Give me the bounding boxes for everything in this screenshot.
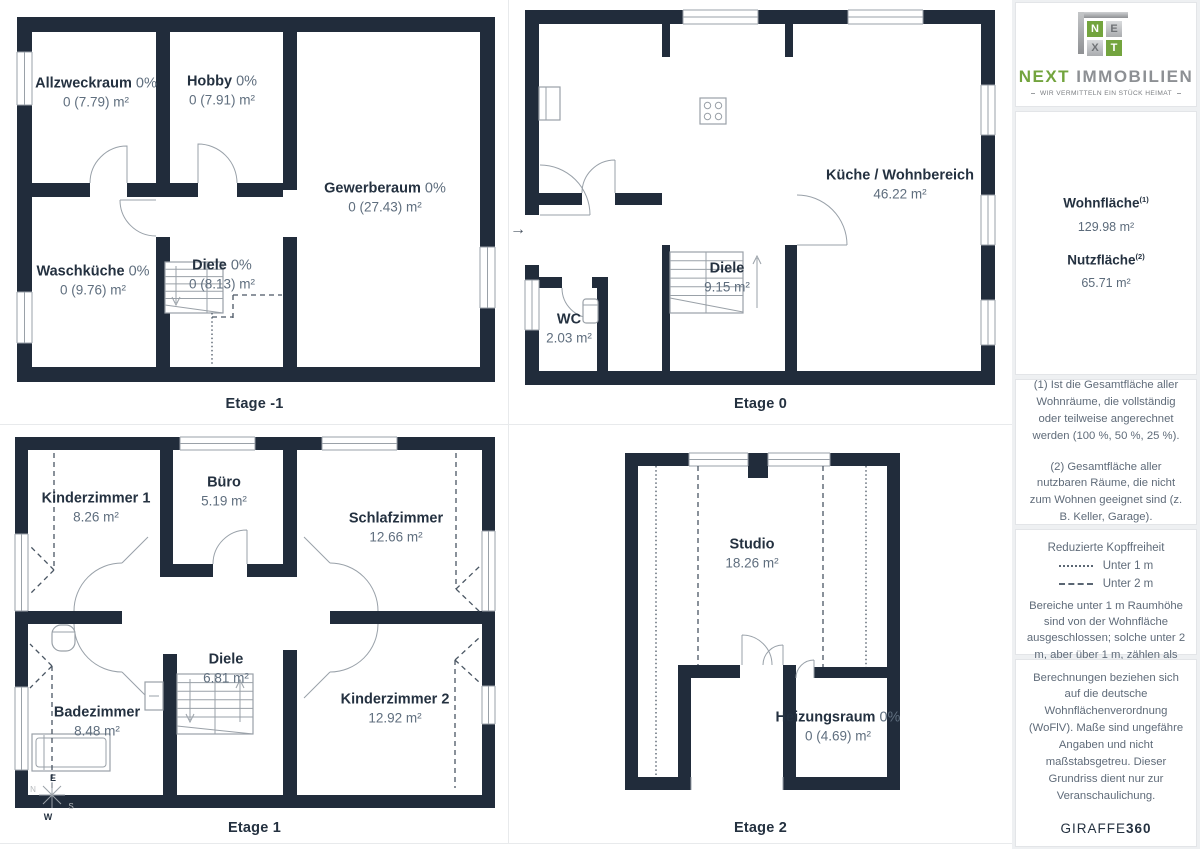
tagline-line-left <box>1031 93 1035 94</box>
quadrant-etage-1: E N S W Kinderzimmer 1 8.26 m² Büro 5.19… <box>0 424 509 849</box>
headroom-legend-card: Reduzierte Kopffreiheit Unter 1 m Unter … <box>1015 529 1197 655</box>
room-label-diele-minus1: Diele 0% 0 (8.13) m² <box>189 255 255 294</box>
room-label-hobby: Hobby 0% 0 (7.91) m² <box>187 71 257 110</box>
room-label-gewerberaum: Gewerberaum 0% 0 (27.43) m² <box>324 178 446 217</box>
logo-letter-n: N <box>1087 21 1103 37</box>
brand-name: NEXT IMMOBILIEN <box>1019 67 1194 87</box>
compass-east: E <box>50 773 56 783</box>
nutzflaeche-block: Nutzfläche(2) 65.71 m² <box>1067 252 1144 291</box>
room-label-waschkueche: Waschküche 0% 0 (9.76) m² <box>36 261 149 300</box>
logo-letter-e: E <box>1106 21 1122 37</box>
logo-letter-t: T <box>1106 40 1122 56</box>
wohnflaeche-block: Wohnfläche(1) 129.98 m² <box>1063 195 1148 234</box>
quadrant-etage-0: → Küche / Wohnbereich 46.22 m² Diele 9.1… <box>509 0 1012 424</box>
dotted-line-sample <box>1059 565 1093 567</box>
room-label-diele-0: Diele 9.15 m² <box>704 258 750 297</box>
wohnflaeche-value: 129.98 m² <box>1063 220 1148 234</box>
compass-south: S <box>68 802 73 811</box>
etage-0-plan-drawing <box>509 0 1012 424</box>
compass-north: N <box>30 785 36 794</box>
room-label-allzweckraum: Allzweckraum 0% 0 (7.79) m² <box>35 73 157 112</box>
dashed-line-sample <box>1059 583 1093 585</box>
room-label-wc: WC 2.03 m² <box>546 309 592 348</box>
giraffe360-logo: GIRAFFE360 <box>1060 821 1151 836</box>
legend-item-under-1m: Unter 1 m <box>1026 560 1186 572</box>
room-label-heizungsraum: Heizungsraum 0% 0 (4.69) m² <box>776 707 901 746</box>
vertical-divider <box>508 0 509 843</box>
floorplan-sheet: Allzweckraum 0% 0 (7.79) m² Hobby 0% 0 (… <box>0 0 1200 849</box>
floorplans-area: Allzweckraum 0% 0 (7.79) m² Hobby 0% 0 (… <box>0 0 1012 849</box>
room-label-schlafzimmer: Schlafzimmer 12.66 m² <box>349 508 443 547</box>
legend-title: Reduzierte Kopffreiheit <box>1026 542 1186 554</box>
brand-tagline: WIR VERMITTELN EIN STÜCK HEIMAT <box>1031 90 1181 97</box>
footnotes-card: (1) Ist die Gesamtfläche aller Wohnräume… <box>1015 379 1197 525</box>
legend-item-under-2m: Unter 2 m <box>1026 578 1186 590</box>
footnote-2: (2) Gesamtfläche aller nutzbaren Räume, … <box>1029 459 1183 527</box>
floor-label-etage-minus1: Etage -1 <box>0 396 509 412</box>
footnote-1: (1) Ist die Gesamtfläche aller Wohnräume… <box>1029 377 1183 445</box>
entry-arrow: → <box>510 221 526 239</box>
room-label-kueche-wohnbereich: Küche / Wohnbereich 46.22 m² <box>826 165 974 204</box>
quadrant-etage-minus1: Allzweckraum 0% 0 (7.79) m² Hobby 0% 0 (… <box>0 0 509 424</box>
next-immobilien-logo-icon: N E X T <box>1074 12 1138 62</box>
quadrant-etage-2: Studio 18.26 m² Heizungsraum 0% 0 (4.69)… <box>509 424 1012 849</box>
room-label-buero: Büro 5.19 m² <box>201 472 247 511</box>
logo-letter-x: X <box>1087 40 1103 56</box>
room-label-kinderzimmer-2: Kinderzimmer 2 12.92 m² <box>341 689 450 728</box>
logo-frame-top <box>1078 12 1128 18</box>
logo-frame-left <box>1078 12 1084 54</box>
floor-label-etage-2: Etage 2 <box>509 820 1012 836</box>
horizontal-divider <box>0 424 1012 425</box>
room-label-diele-1: Diele 6.81 m² <box>203 649 249 688</box>
logo-letter-grid: N E X T <box>1087 21 1122 56</box>
door-arcs <box>742 635 814 678</box>
nutzflaeche-value: 65.71 m² <box>1067 276 1144 290</box>
floor-label-etage-0: Etage 0 <box>509 396 1012 412</box>
area-summary-card: Wohnfläche(1) 129.98 m² Nutzfläche(2) 65… <box>1015 111 1197 374</box>
room-label-kinderzimmer-1: Kinderzimmer 1 8.26 m² <box>42 488 151 527</box>
etage-2-plan-drawing <box>509 424 1012 849</box>
brand-card: N E X T NEXT IMMOBILIEN WIR VERMITTELN E… <box>1015 2 1197 107</box>
tagline-line-right <box>1177 93 1181 94</box>
info-sidebar: N E X T NEXT IMMOBILIEN WIR VERMITTELN E… <box>1012 0 1200 849</box>
room-label-badezimmer: Badezimmer 8.48 m² <box>54 702 140 741</box>
bottom-divider <box>0 843 1012 844</box>
disclaimer-card: Berechnungen beziehen sich auf die deuts… <box>1015 659 1197 848</box>
disclaimer-text: Berechnungen beziehen sich auf die deuts… <box>1028 670 1184 806</box>
room-label-studio: Studio 18.26 m² <box>725 534 778 573</box>
floor-label-etage-1: Etage 1 <box>0 820 509 836</box>
